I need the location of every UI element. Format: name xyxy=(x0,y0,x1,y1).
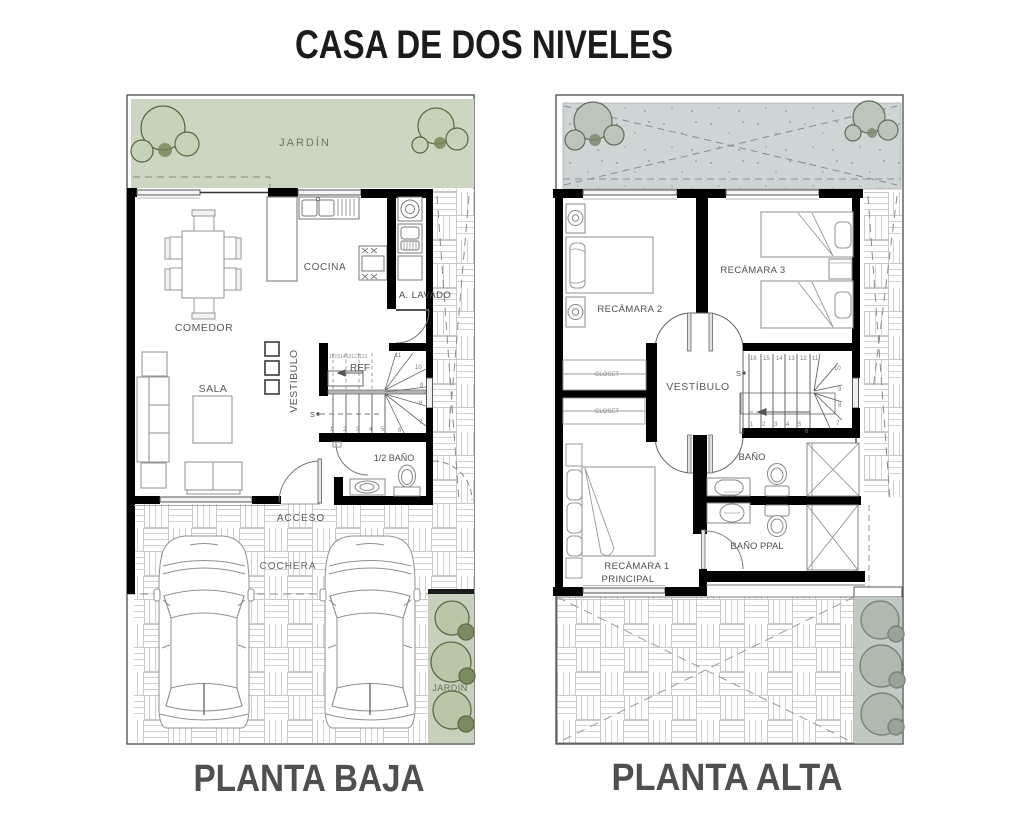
svg-text:11: 11 xyxy=(395,353,402,359)
svg-text:16: 16 xyxy=(750,356,757,362)
svg-text:PLANTA BAJA: PLANTA BAJA xyxy=(194,758,425,800)
svg-text:RECÁMARA 3: RECÁMARA 3 xyxy=(720,265,785,276)
svg-text:16151413121121: 16151413121121 xyxy=(329,354,368,360)
svg-text:RECÁMARA 2: RECÁMARA 2 xyxy=(597,304,662,315)
svg-text:11: 11 xyxy=(812,356,819,362)
svg-text:BAÑO: BAÑO xyxy=(739,452,766,463)
svg-text:5: 5 xyxy=(381,427,385,433)
svg-text:SALA: SALA xyxy=(199,383,228,395)
svg-text:7: 7 xyxy=(836,421,840,427)
svg-text:COCHERA: COCHERA xyxy=(259,561,316,572)
svg-text:PRINCIPAL: PRINCIPAL xyxy=(601,574,654,585)
svg-text:PLANTA ALTA: PLANTA ALTA xyxy=(612,757,843,799)
svg-text:9: 9 xyxy=(838,387,842,393)
svg-text:8: 8 xyxy=(419,401,423,407)
svg-text:A. LAVADO: A. LAVADO xyxy=(399,290,451,301)
svg-text:3: 3 xyxy=(774,422,778,428)
svg-text:14: 14 xyxy=(776,356,783,362)
svg-text:15: 15 xyxy=(763,356,770,362)
svg-text:4: 4 xyxy=(786,422,790,428)
svg-text:10: 10 xyxy=(834,366,841,372)
svg-text:VESTÍBULO: VESTÍBULO xyxy=(666,380,729,393)
svg-text:12: 12 xyxy=(800,356,807,362)
svg-text:1/2 BAÑO: 1/2 BAÑO xyxy=(374,453,415,463)
svg-text:REF: REF xyxy=(350,363,370,374)
svg-text:COMEDOR: COMEDOR xyxy=(175,322,233,334)
svg-text:CLOSET: CLOSET xyxy=(595,372,619,378)
svg-text:5: 5 xyxy=(798,422,802,428)
svg-text:RECÁMARA 1: RECÁMARA 1 xyxy=(604,561,669,572)
svg-text:CLOSET: CLOSET xyxy=(595,409,619,415)
svg-text:VESTIBULO: VESTIBULO xyxy=(288,349,300,412)
svg-text:9: 9 xyxy=(420,383,424,389)
svg-text:CASA DE DOS NIVELES: CASA DE DOS NIVELES xyxy=(295,23,673,67)
svg-text:S: S xyxy=(736,369,741,378)
svg-text:13: 13 xyxy=(788,356,795,362)
svg-text:COCINA: COCINA xyxy=(304,262,347,273)
svg-text:JARDÍN: JARDÍN xyxy=(432,683,468,693)
svg-text:2: 2 xyxy=(762,422,766,428)
svg-text:1: 1 xyxy=(750,422,754,428)
svg-text:JARDÍN: JARDÍN xyxy=(279,136,331,149)
svg-text:ACCESO: ACCESO xyxy=(277,513,325,524)
svg-text:S: S xyxy=(310,410,315,419)
svg-text:8: 8 xyxy=(838,403,842,409)
svg-text:10: 10 xyxy=(415,365,422,371)
